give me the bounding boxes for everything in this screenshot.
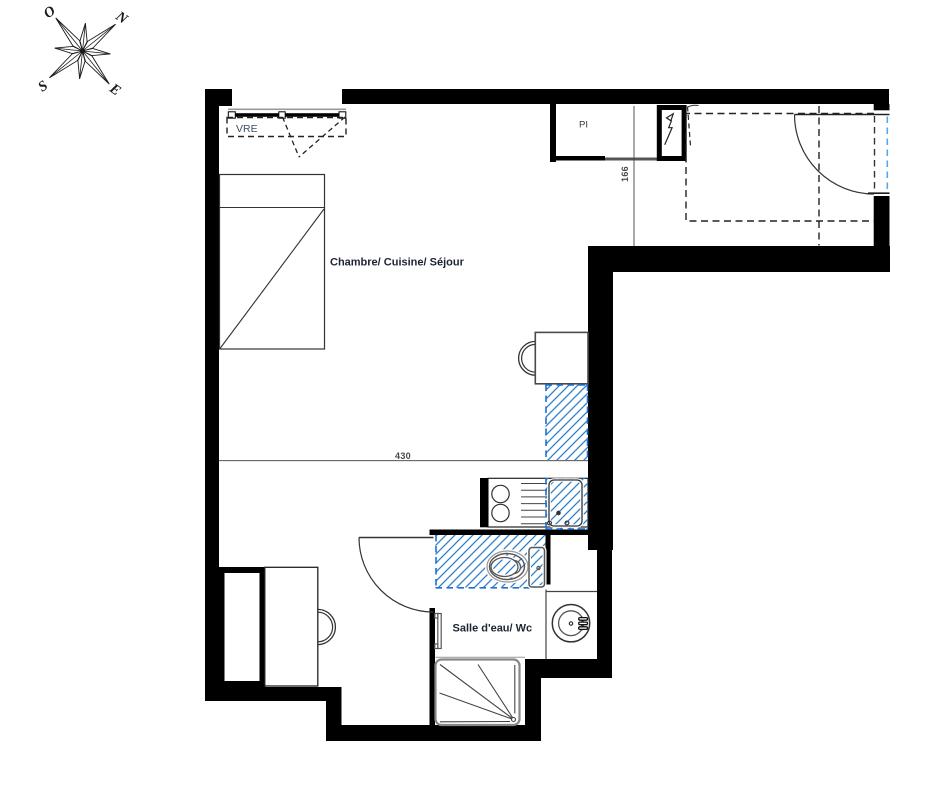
svg-text:430: 430 <box>395 451 411 461</box>
svg-text:Chambre/ Cuisine/ Séjour: Chambre/ Cuisine/ Séjour <box>330 257 465 269</box>
svg-text:PI: PI <box>579 120 588 131</box>
svg-text:VRE: VRE <box>236 123 258 135</box>
svg-text:166: 166 <box>620 166 630 182</box>
svg-text:Salle d'eau/ Wc: Salle d'eau/ Wc <box>453 623 533 635</box>
